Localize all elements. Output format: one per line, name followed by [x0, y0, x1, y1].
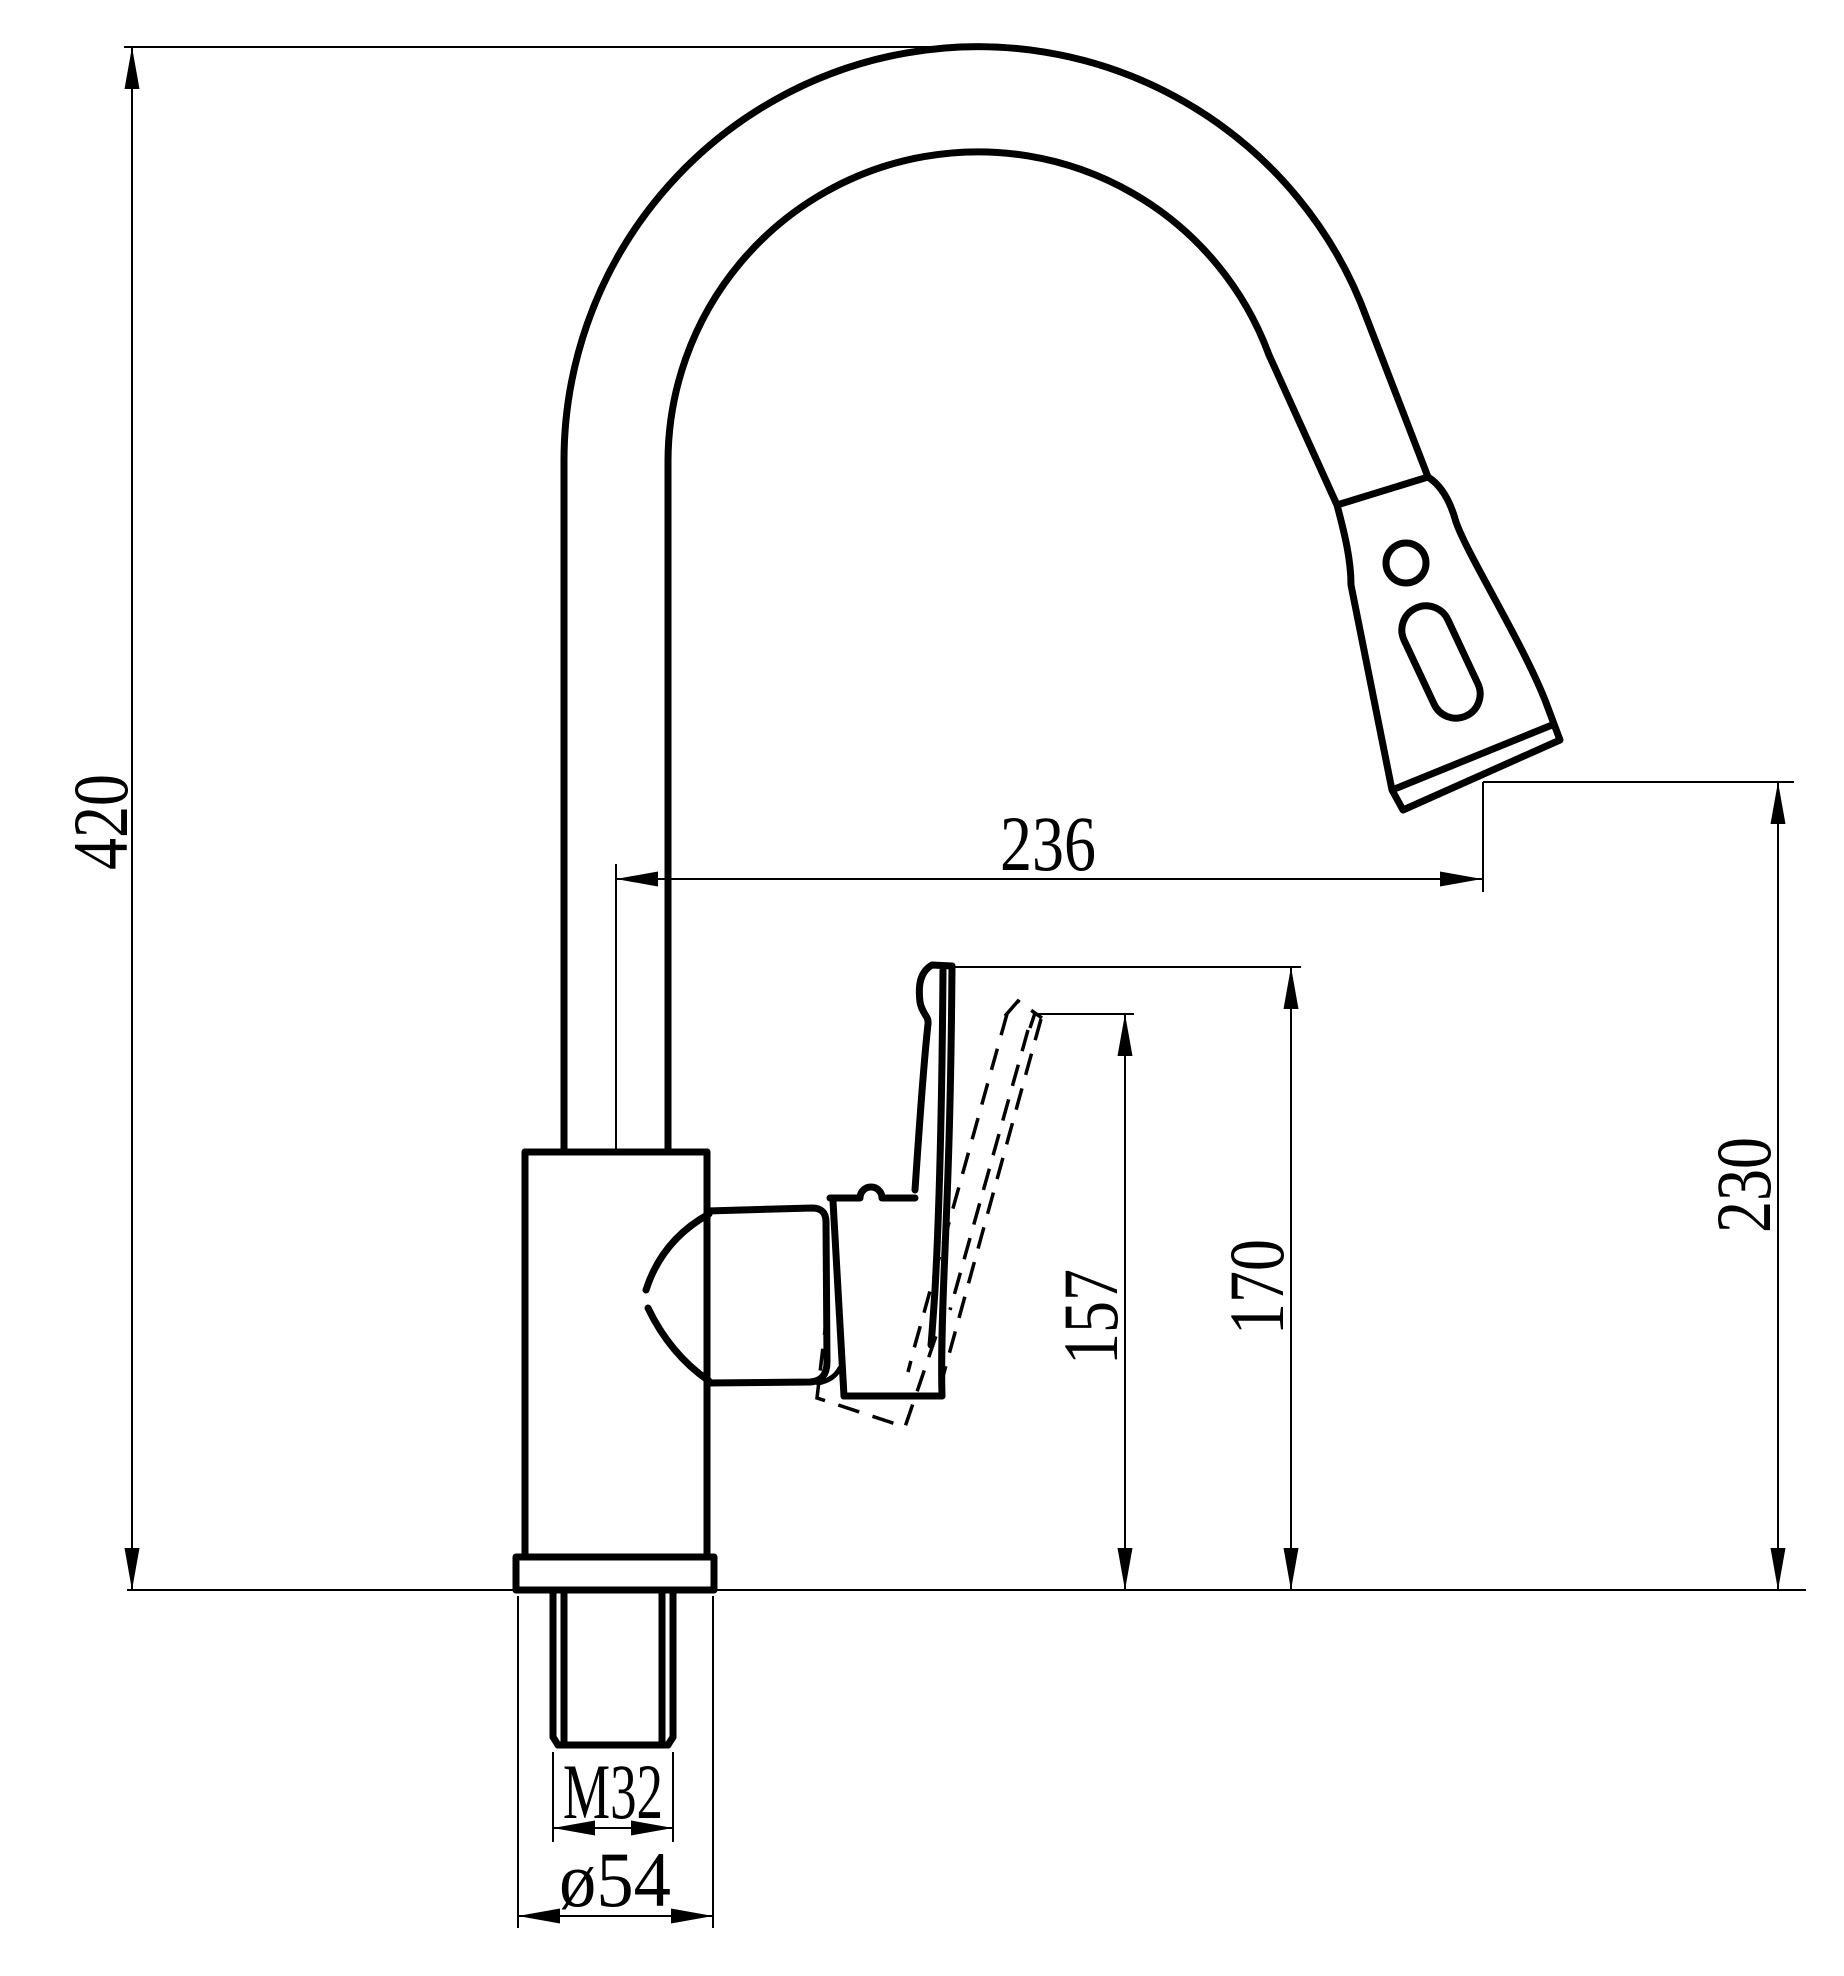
dimension-label: 236	[1000, 800, 1096, 887]
base-flange	[516, 1557, 714, 1590]
spray-head-joint-line	[1337, 477, 1428, 505]
arrowhead-up	[1284, 967, 1299, 1009]
shank-chamfer-left	[553, 1737, 558, 1745]
arrowhead-down	[1284, 1548, 1299, 1590]
handle-tilted-inner-edge	[950, 1030, 1028, 1310]
arrowhead-right	[671, 1909, 713, 1924]
arrowhead-up	[1771, 782, 1786, 824]
spray-slot-capsule	[1402, 606, 1480, 718]
dimension-handle-tilted-height: 157	[1033, 1014, 1134, 1590]
spout-outer-edge	[564, 47, 1428, 1152]
handle-tilted-dashed	[817, 1001, 1042, 1427]
spray-head-outline	[1337, 477, 1560, 810]
valve-neck-outline	[707, 1208, 827, 1383]
handle-ledge	[830, 1187, 915, 1198]
dimension-thread-size: M32	[553, 1748, 673, 1842]
shank-chamfer-right	[668, 1737, 673, 1745]
technical-drawing-page: 420 236 230 170	[0, 0, 1844, 1976]
arrowhead-up	[1118, 1014, 1133, 1056]
dimension-outlet-height: 230	[1483, 782, 1794, 1590]
dimension-label: M32	[563, 1748, 663, 1835]
thread-shank	[553, 1590, 673, 1745]
handle-upright	[830, 965, 952, 1396]
spout-inner-edge	[668, 152, 1337, 1152]
arrowhead-down	[1771, 1548, 1786, 1590]
ball-joint-upper-arc	[646, 1214, 709, 1290]
arrowhead-down	[1118, 1548, 1133, 1590]
ball-joint-lower-arc	[648, 1308, 709, 1381]
dimension-label: 170	[1213, 1239, 1300, 1335]
arrowhead-left	[616, 872, 658, 887]
faucet-technical-drawing: 420 236 230 170	[0, 0, 1844, 1976]
dimensions: 420 236 230 170	[57, 47, 1806, 1928]
arrowhead-down	[125, 1548, 140, 1590]
spray-button-circle	[1386, 543, 1426, 583]
dimension-label: 420	[57, 774, 144, 870]
dimension-label: 230	[1700, 1137, 1787, 1233]
dimension-label: 157	[1047, 1269, 1134, 1365]
faucet-outline	[516, 47, 1560, 1745]
arrowhead-left	[518, 1909, 560, 1924]
arrowhead-up	[125, 47, 140, 89]
arrowhead-right	[1440, 872, 1482, 887]
dimension-label: ø54	[559, 1836, 671, 1923]
